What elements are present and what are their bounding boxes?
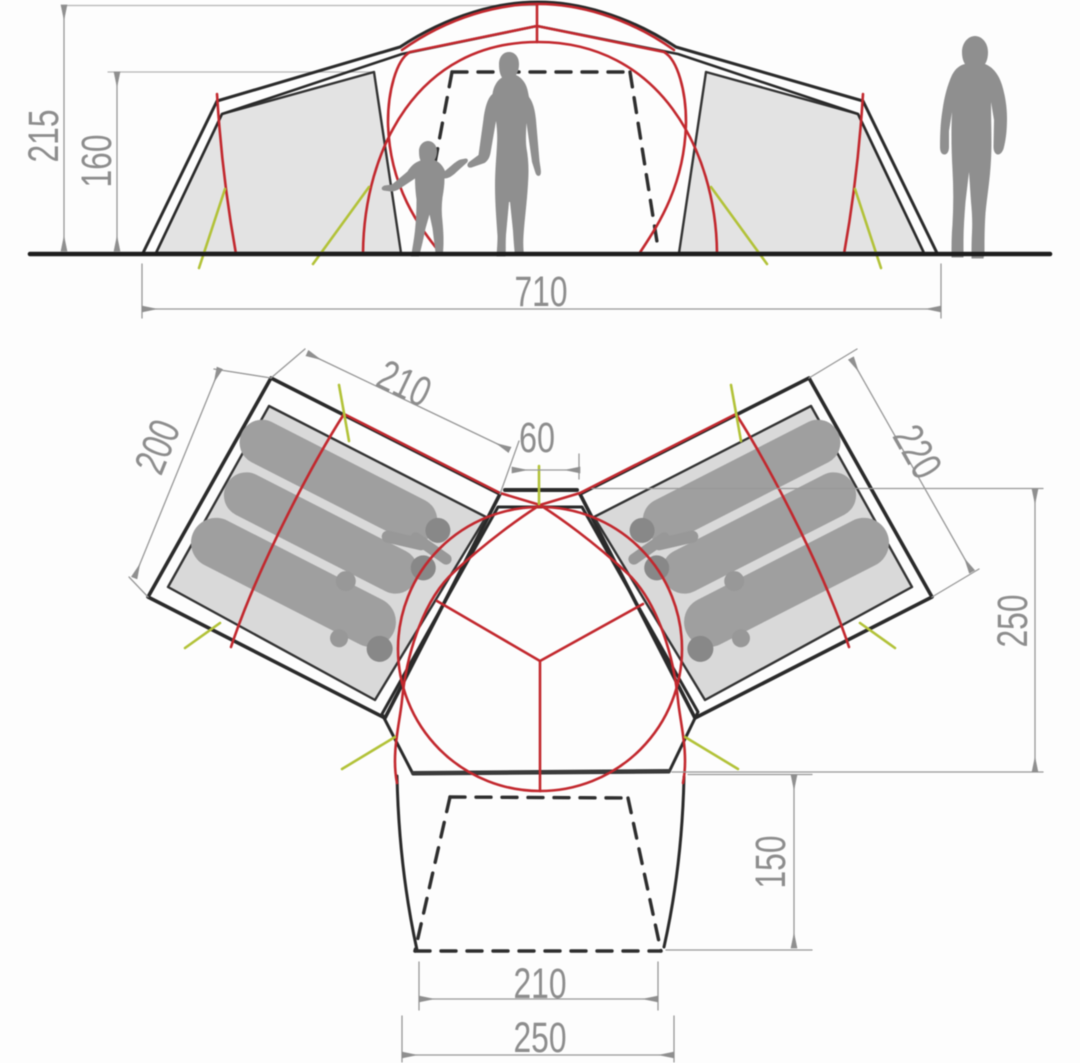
svg-text:200: 200 [126, 413, 190, 480]
svg-text:150: 150 [747, 836, 795, 889]
svg-text:210: 210 [514, 960, 567, 1008]
svg-text:250: 250 [514, 1014, 567, 1062]
svg-text:60: 60 [519, 414, 555, 462]
svg-text:215: 215 [20, 110, 68, 163]
svg-text:710: 710 [515, 268, 568, 316]
svg-text:160: 160 [73, 135, 121, 188]
svg-text:220: 220 [883, 417, 951, 487]
svg-text:210: 210 [370, 351, 439, 417]
svg-text:250: 250 [989, 595, 1037, 648]
